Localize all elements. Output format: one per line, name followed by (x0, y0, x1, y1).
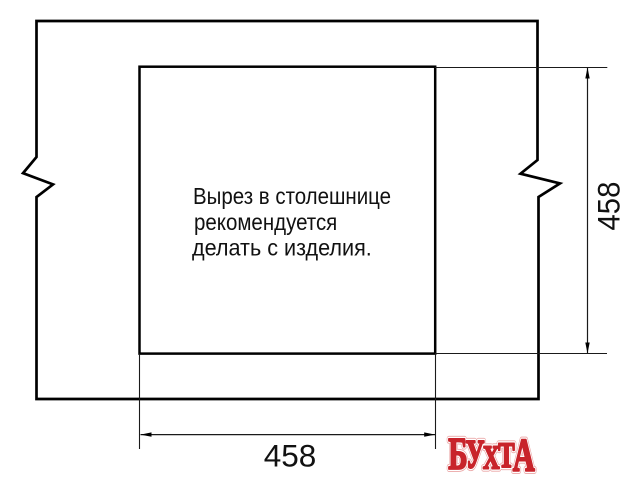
svg-text:рекомендуется: рекомендуется (194, 209, 337, 236)
svg-text:458: 458 (264, 438, 317, 474)
svg-text:делать с изделия.: делать с изделия. (192, 235, 372, 261)
svg-text:Вырез в столешнице: Вырез в столешнице (193, 183, 391, 210)
svg-text:458: 458 (592, 182, 627, 231)
